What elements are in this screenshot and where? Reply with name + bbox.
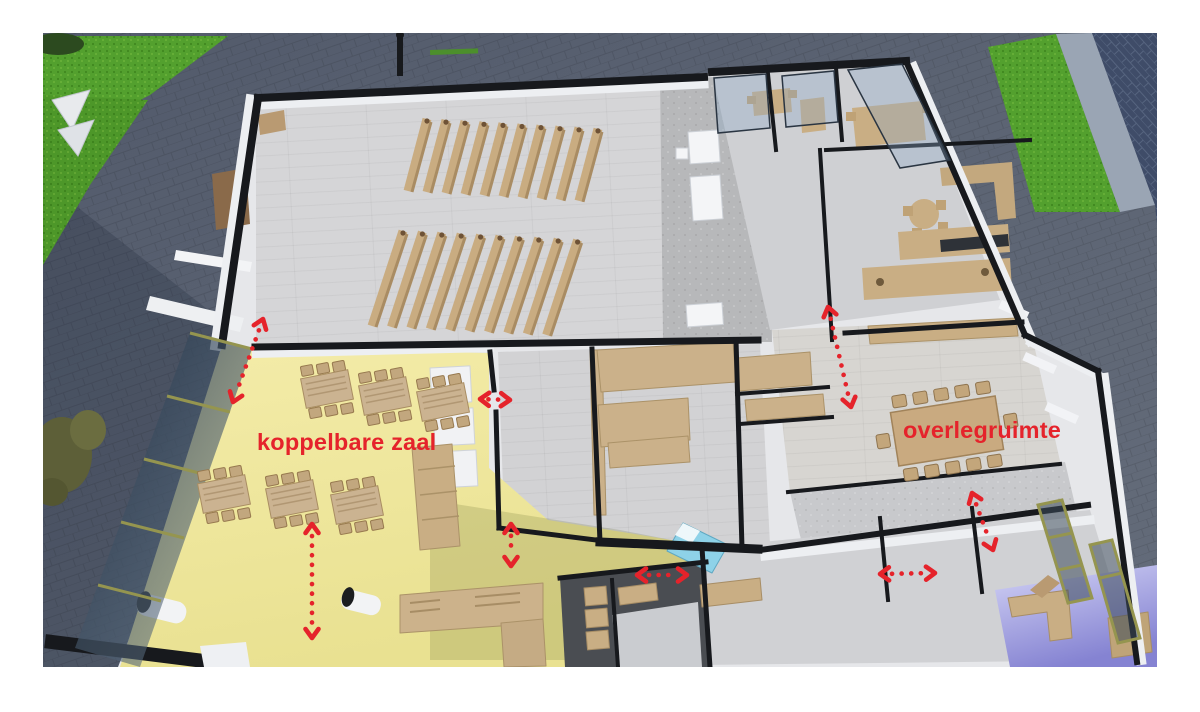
chair [300,364,314,376]
chair [324,405,338,417]
chair [340,402,354,414]
chair [197,469,211,481]
chair [289,515,303,527]
chair [346,478,360,490]
chair [265,474,279,486]
label-koppelbare-zaal: koppelbare zaal [257,429,436,456]
chair [398,409,412,421]
chair [366,414,380,426]
chair [221,510,235,522]
chair [338,523,352,535]
chair [891,394,907,408]
chair [330,480,344,492]
chair [912,391,928,405]
chair [281,472,295,484]
chair [945,461,961,475]
chair [382,412,396,424]
beam-white-end [200,642,250,667]
chair [966,457,982,471]
chair [358,371,372,383]
chair [205,512,219,524]
tall-cabinet [412,444,460,550]
chair [456,415,470,427]
chair [440,418,454,430]
chair [308,407,322,419]
floorplan-3d-render [0,0,1200,712]
chair [213,467,227,479]
chair [237,507,251,519]
chair [933,387,949,401]
kitchen-counter-leg [501,619,546,667]
counter-room-1 [737,352,812,391]
render-canvas: koppelbare zaal overlegruimte [0,0,1200,712]
label-overlegruimte: overlegruimte [903,417,1061,444]
chair [432,375,446,387]
chair [924,464,940,478]
chair [876,433,891,449]
chair [903,467,919,481]
chair [975,381,991,395]
chair [374,369,388,381]
chair [273,517,287,529]
chair [370,518,384,530]
chair [416,377,430,389]
chair [954,384,970,398]
chair [987,454,1003,468]
pole [397,34,403,76]
chair [354,521,368,533]
chair [316,362,330,374]
